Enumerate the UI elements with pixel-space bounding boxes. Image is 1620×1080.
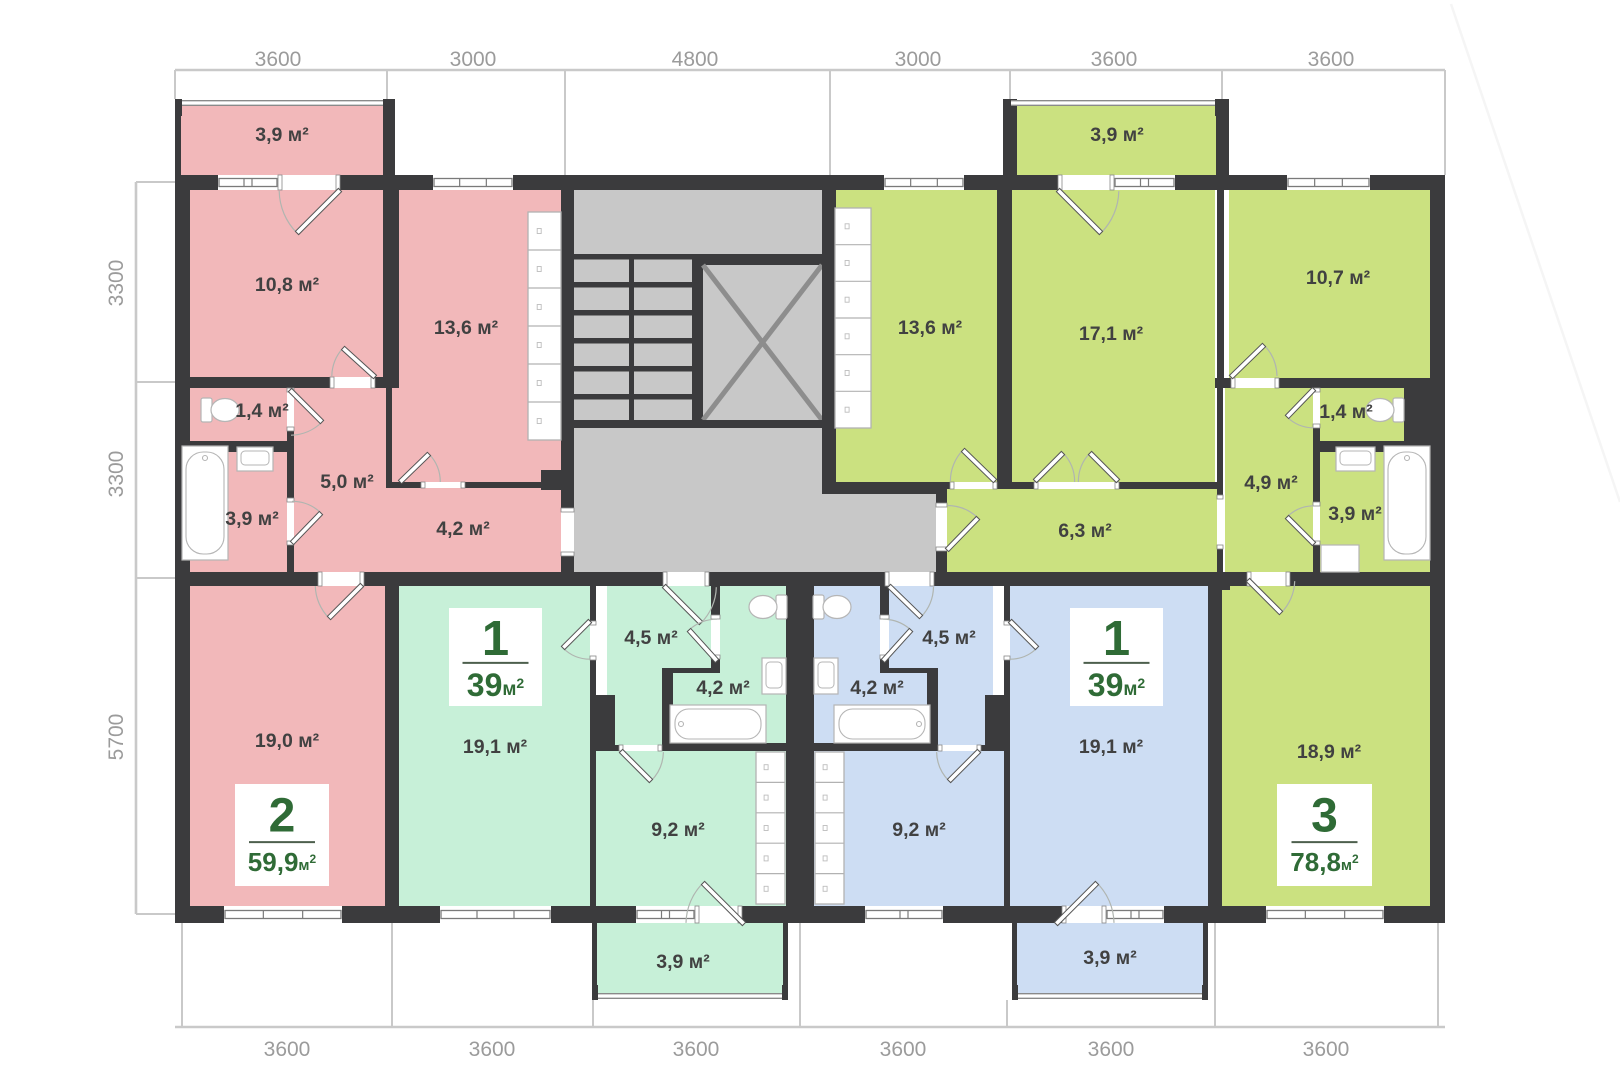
svg-text:10,7 м²: 10,7 м² — [1306, 267, 1371, 289]
svg-text:3000: 3000 — [895, 48, 942, 71]
svg-text:3300: 3300 — [105, 260, 128, 307]
svg-text:3600: 3600 — [673, 1038, 720, 1061]
svg-text:18,9 м²: 18,9 м² — [1297, 741, 1362, 763]
svg-text:5,0 м²: 5,0 м² — [320, 471, 374, 493]
svg-text:3600: 3600 — [264, 1038, 311, 1061]
svg-text:1: 1 — [1103, 612, 1130, 666]
svg-text:9,2 м²: 9,2 м² — [651, 819, 705, 841]
svg-text:5700: 5700 — [105, 714, 128, 761]
svg-text:4,2 м²: 4,2 м² — [696, 677, 750, 699]
svg-text:3300: 3300 — [105, 451, 128, 498]
svg-text:3: 3 — [1311, 789, 1338, 842]
svg-text:3600: 3600 — [255, 48, 302, 71]
svg-text:4,2 м²: 4,2 м² — [850, 677, 904, 699]
svg-text:3600: 3600 — [1088, 1038, 1135, 1061]
svg-text:6,3 м²: 6,3 м² — [1058, 520, 1112, 542]
svg-text:3,9 м²: 3,9 м² — [255, 124, 309, 146]
svg-text:4,2 м²: 4,2 м² — [436, 518, 490, 540]
svg-text:9,2 м²: 9,2 м² — [892, 819, 946, 841]
svg-text:19,1 м²: 19,1 м² — [1079, 736, 1144, 758]
svg-text:3000: 3000 — [450, 48, 497, 71]
svg-text:1,4 м²: 1,4 м² — [235, 400, 289, 422]
svg-text:10,8 м²: 10,8 м² — [255, 274, 320, 296]
svg-text:3600: 3600 — [1303, 1038, 1350, 1061]
svg-text:4,9 м²: 4,9 м² — [1244, 472, 1298, 494]
svg-text:19,0 м²: 19,0 м² — [255, 730, 320, 752]
svg-text:19,1 м²: 19,1 м² — [463, 736, 528, 758]
svg-text:3600: 3600 — [880, 1038, 927, 1061]
svg-text:4,5 м²: 4,5 м² — [922, 627, 976, 649]
svg-text:3600: 3600 — [469, 1038, 516, 1061]
svg-text:3,9 м²: 3,9 м² — [1090, 124, 1144, 146]
svg-text:1,4 м²: 1,4 м² — [1319, 401, 1373, 423]
svg-text:3,9 м²: 3,9 м² — [1083, 947, 1137, 969]
svg-text:3600: 3600 — [1091, 48, 1138, 71]
svg-text:2: 2 — [269, 789, 296, 842]
svg-text:4800: 4800 — [672, 48, 719, 71]
svg-text:17,1 м²: 17,1 м² — [1079, 323, 1144, 345]
svg-text:13,6 м²: 13,6 м² — [434, 317, 499, 339]
svg-text:1: 1 — [482, 612, 509, 666]
svg-text:4,5 м²: 4,5 м² — [624, 627, 678, 649]
svg-text:3,9 м²: 3,9 м² — [1328, 503, 1382, 525]
svg-text:13,6 м²: 13,6 м² — [898, 317, 963, 339]
svg-text:3,9 м²: 3,9 м² — [225, 508, 279, 530]
svg-text:3600: 3600 — [1308, 48, 1355, 71]
svg-text:3,9 м²: 3,9 м² — [656, 951, 710, 973]
